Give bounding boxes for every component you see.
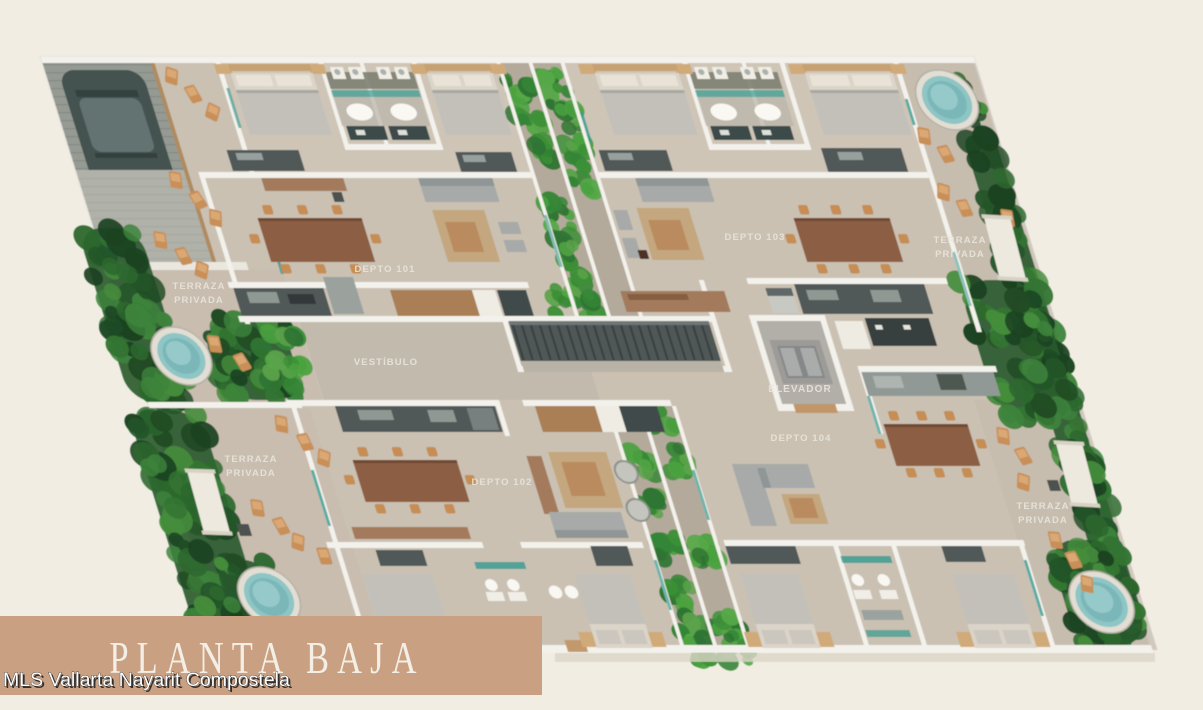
svg-text:DEPTO 103: DEPTO 103: [725, 232, 786, 243]
svg-text:PRIVADA: PRIVADA: [174, 295, 224, 306]
svg-text:TERRAZA: TERRAZA: [172, 281, 225, 292]
svg-text:PRIVADA: PRIVADA: [226, 468, 276, 479]
svg-text:TERRAZA: TERRAZA: [224, 454, 277, 465]
svg-text:VESTÍBULO: VESTÍBULO: [354, 357, 418, 368]
svg-text:TERRAZA: TERRAZA: [933, 235, 986, 246]
svg-text:DEPTO 104: DEPTO 104: [771, 433, 832, 444]
svg-text:TERRAZA: TERRAZA: [1016, 501, 1069, 512]
svg-text:PRIVADA: PRIVADA: [1018, 515, 1068, 526]
svg-text:PRIVADA: PRIVADA: [935, 249, 985, 260]
svg-text:DEPTO 101: DEPTO 101: [355, 264, 416, 275]
svg-text:ELEVADOR: ELEVADOR: [768, 384, 832, 395]
svg-text:DEPTO 102: DEPTO 102: [472, 477, 533, 488]
svg-text:MLS Vallarta Nayarit Compostel: MLS Vallarta Nayarit Compostela: [3, 669, 290, 691]
